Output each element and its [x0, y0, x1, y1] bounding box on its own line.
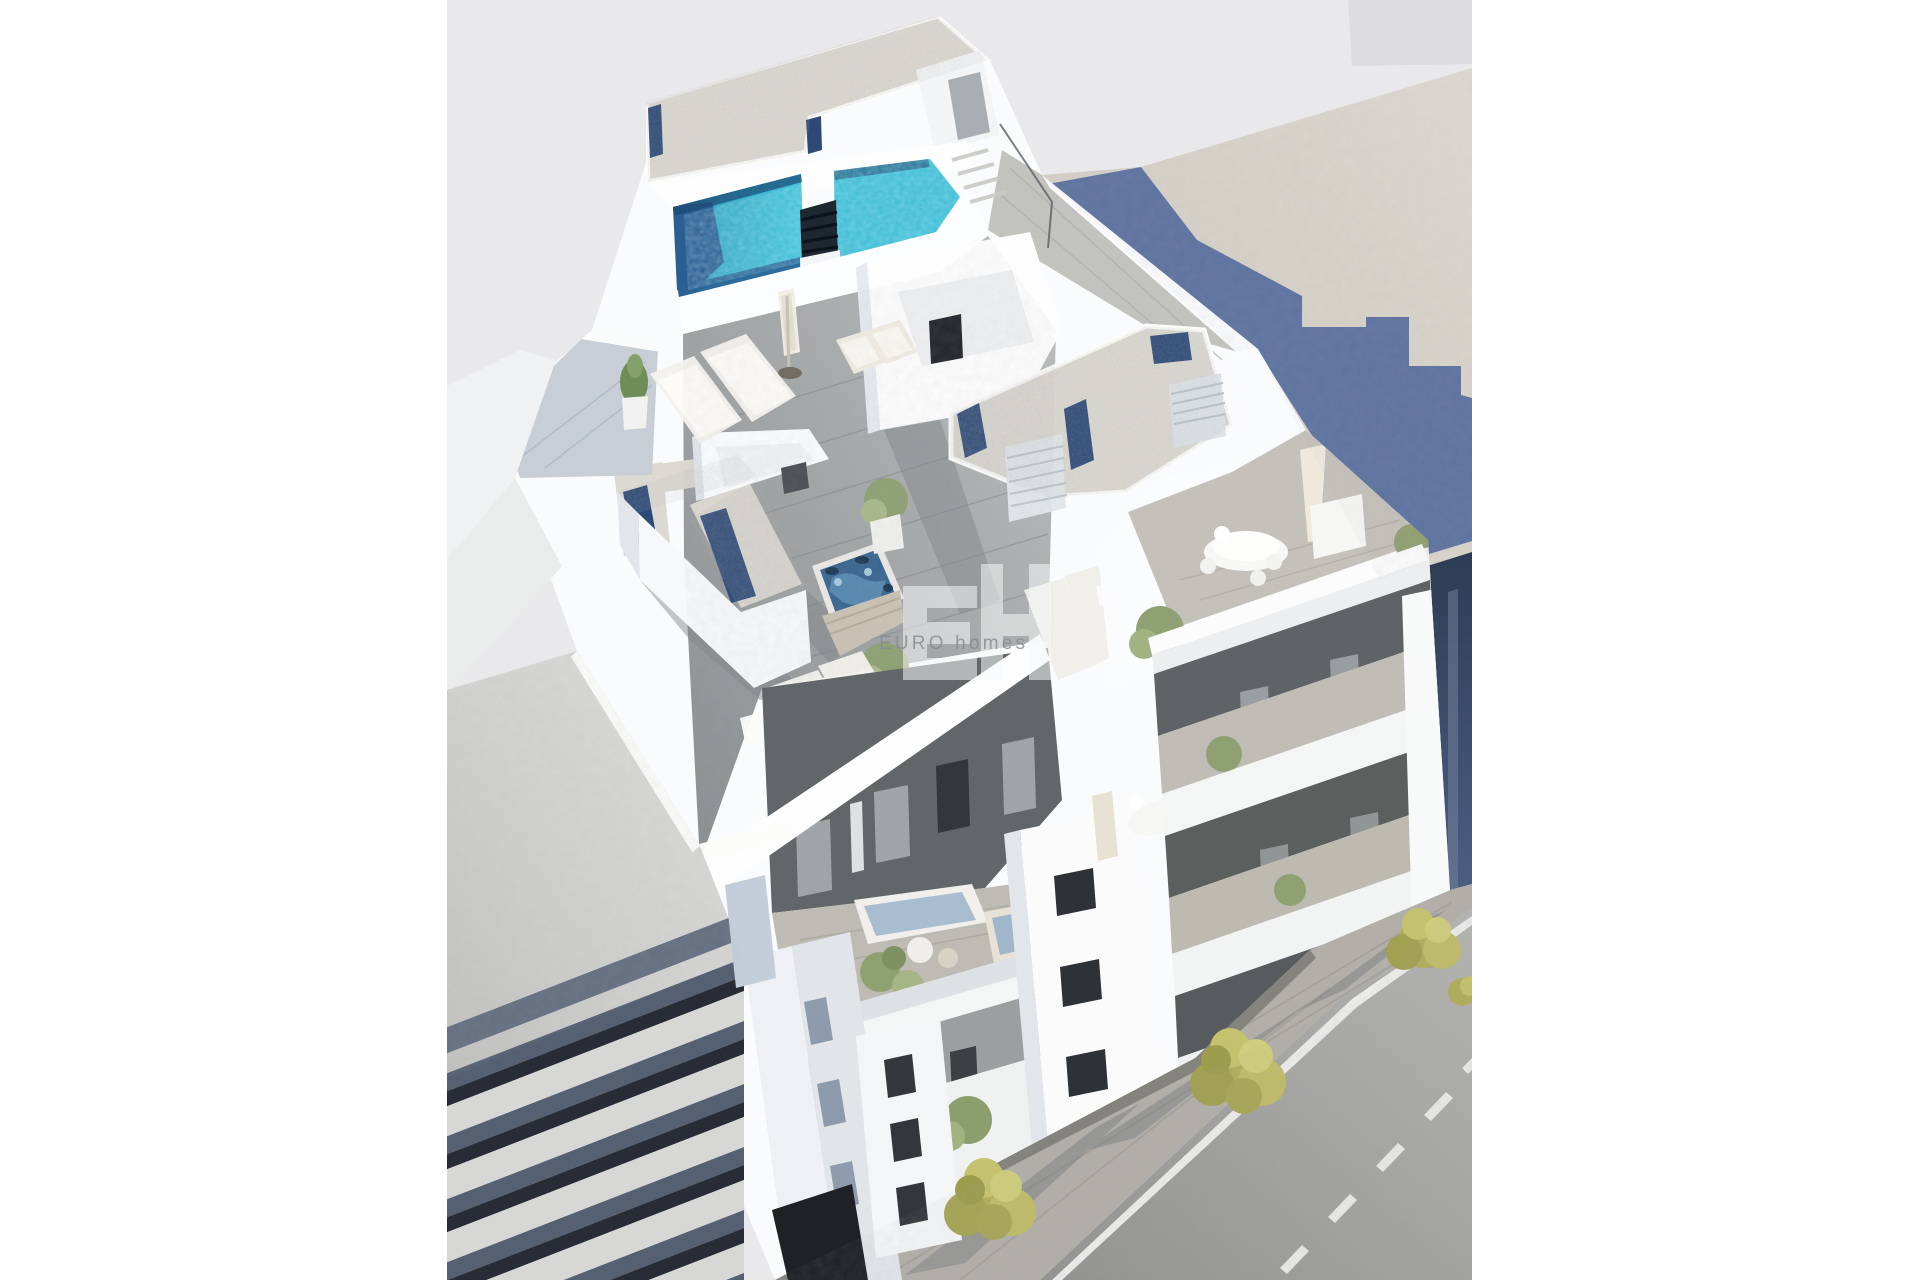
svg-text:EURO homes: EURO homes	[879, 633, 1028, 654]
